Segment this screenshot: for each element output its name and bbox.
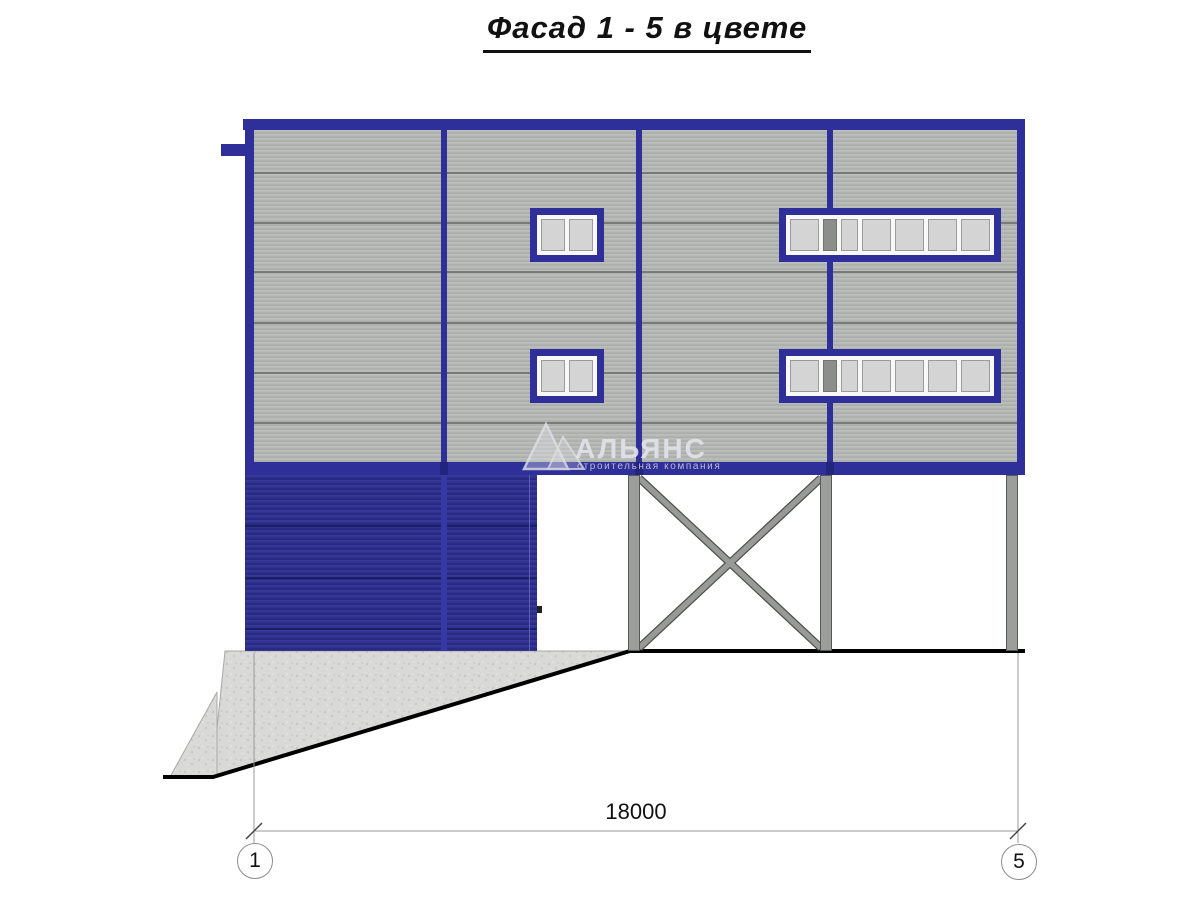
dimension-value: 18000	[536, 799, 736, 825]
watermark-tagline: строительная компания	[577, 461, 721, 472]
axis-marker-1: 1	[237, 843, 273, 879]
axis-marker-5-label: 5	[1013, 850, 1025, 874]
axis-marker-1-label: 1	[249, 849, 261, 873]
drawing-sheet: Фасад 1 - 5 в цвете	[0, 0, 1200, 900]
axis-marker-5: 5	[1001, 844, 1037, 880]
